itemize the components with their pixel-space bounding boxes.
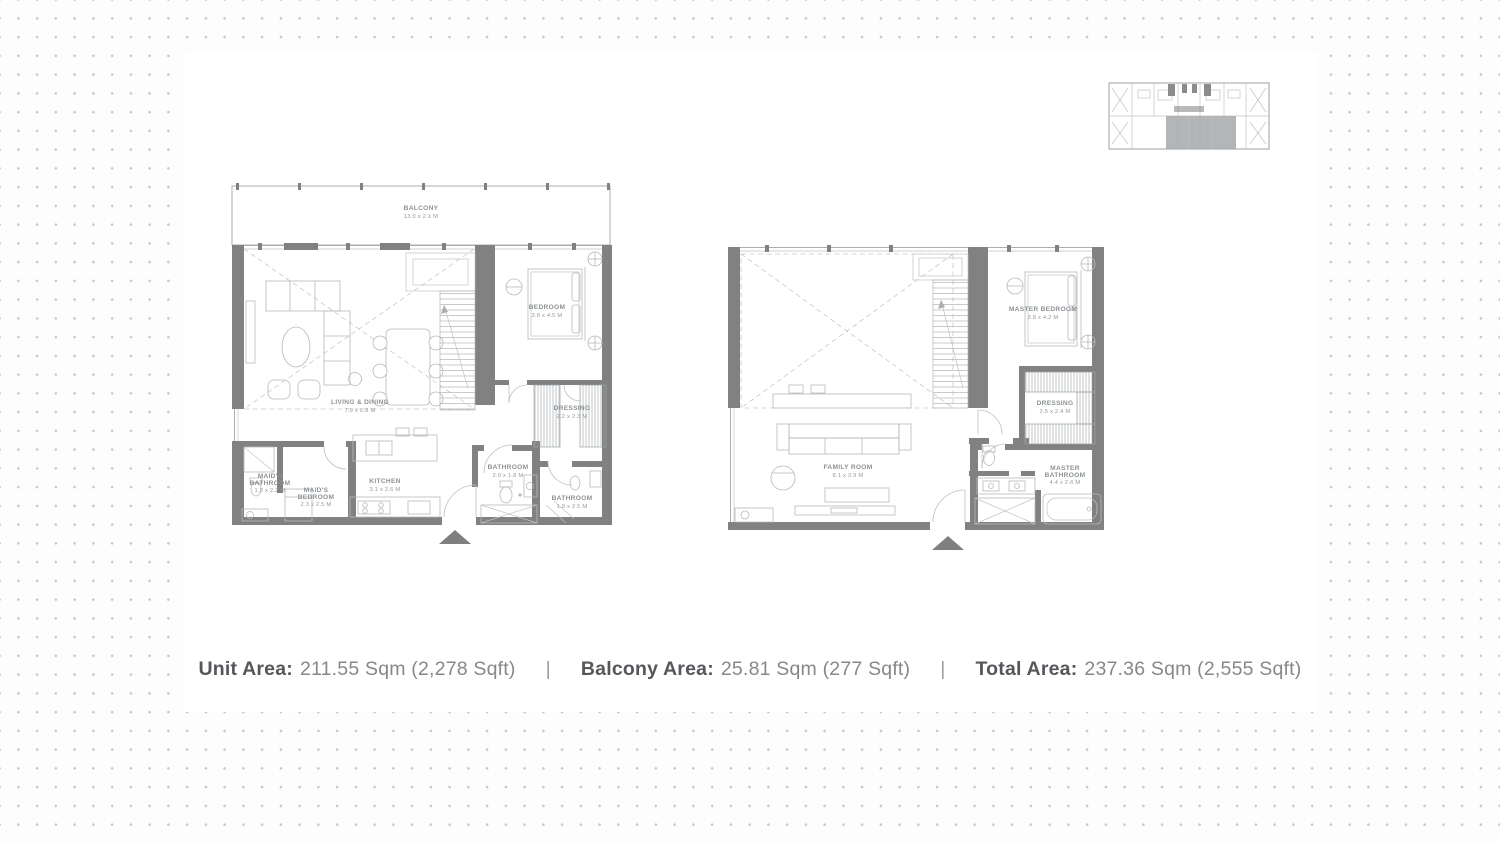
key-plan: [1108, 82, 1270, 150]
entrance-arrow-icon: [439, 530, 471, 544]
total-area-value: 237.36 Sqm (2,555 Sqft): [1084, 658, 1301, 680]
tv-console: [795, 506, 895, 515]
room-dims: 1.9 x 2.5 M: [557, 504, 588, 510]
room-label: MAID'S: [304, 487, 329, 494]
sink: [590, 471, 601, 487]
fridge: [408, 501, 430, 514]
toilet: [570, 476, 580, 490]
room-dressing: DRESSING 2.2 x 2.3 M: [534, 385, 606, 447]
room-label: KITCHEN: [369, 478, 400, 485]
room-label: LIVING & DINING: [331, 399, 389, 406]
room-label: BEDROOM: [529, 304, 566, 311]
armchairs: [268, 380, 320, 399]
sofa: [266, 281, 350, 385]
room-label: MAID'S: [258, 473, 283, 480]
table: [773, 394, 911, 408]
coffee-table: [825, 488, 889, 502]
wardrobe: [1025, 372, 1095, 392]
separator: |: [546, 658, 551, 681]
room-dims: 2.5 x 2.4 M: [1040, 409, 1071, 415]
room-kitchen: KITCHEN 3.1 x 2.6 M: [350, 428, 440, 517]
wardrobe: [1077, 392, 1095, 424]
separator: |: [940, 658, 945, 681]
room-family-room: FAMILY ROOM 8.1 x 3.9 M: [771, 424, 911, 515]
stairs: [406, 253, 475, 410]
lower-floor-plan: BALCONY 13.0 x 2.1 M: [228, 183, 618, 548]
room-label: DRESSING: [554, 405, 591, 412]
room-label: BATHROOM: [488, 464, 529, 471]
room-label: BEDROOM: [298, 494, 335, 501]
shower: [975, 498, 1035, 524]
drain: [518, 493, 521, 496]
room-dims: 3.1 x 2.6 M: [370, 487, 401, 493]
room-bathroom-2: BATHROOM 1.9 x 2.5 M: [546, 471, 601, 523]
balcony-area-value: 25.81 Sqm (277 Sqft): [721, 658, 910, 680]
unit-area-label: Unit Area:: [199, 658, 293, 680]
toilet: [984, 451, 995, 466]
wardrobe: [1025, 424, 1095, 444]
balcony-area-label: Balcony Area:: [581, 658, 714, 680]
total-area: Total Area:237.36 Sqm (2,555 Sqft): [976, 658, 1302, 681]
room-dims: 2.2 x 2.3 M: [557, 414, 588, 420]
room-master-bedroom: MASTER BEDROOM 3.8 x 4.2 M: [1007, 257, 1095, 349]
side-table: [349, 373, 362, 386]
room-dims: 2.0 x 1.8 M: [493, 473, 524, 479]
room-bathroom-1: BATHROOM 2.0 x 1.8 M: [488, 464, 537, 503]
unit-area-value: 211.55 Sqm (2,278 Sqft): [300, 658, 516, 680]
room-bedroom: BEDROOM 3.8 x 4.5 M: [506, 252, 602, 350]
upper-floor-plan: MASTER BEDROOM 3.8 x 4.2 M DRESSING 2.5 …: [725, 238, 1115, 568]
room-label: BATHROOM: [250, 480, 291, 487]
room-label: FAMILY ROOM: [823, 464, 872, 471]
room-balcony: BALCONY 13.0 x 2.1 M: [232, 183, 610, 245]
double-height-void: [741, 254, 953, 408]
room-label: BATHROOM: [1045, 472, 1086, 479]
window-wall: [232, 243, 612, 250]
room-living-dining: LIVING & DINING 7.9 x 6.9 M: [244, 249, 474, 414]
room-dims: 4.4 x 2.6 M: [1050, 480, 1081, 486]
room-dims: 13.0 x 2.1 M: [404, 214, 438, 220]
room-maids-bathroom: MAID'S BATHROOM 1.2 x 2.2 M: [242, 447, 291, 521]
console-table: [246, 301, 255, 363]
dining-table: [373, 329, 443, 406]
key-plan-highlighted-unit: [1166, 116, 1236, 149]
entrance-arrow-icon: [932, 536, 964, 550]
area-summary: Unit Area:211.55 Sqm (2,278 Sqft) | Balc…: [0, 653, 1500, 685]
room-dims: 3.8 x 4.2 M: [1028, 315, 1059, 321]
toilet: [500, 487, 512, 503]
door-swings: [933, 410, 1006, 522]
coffee-table: [282, 327, 310, 367]
room-dims: 7.9 x 6.9 M: [345, 408, 376, 414]
armchair: [771, 466, 795, 490]
room-label: BATHROOM: [552, 495, 593, 502]
room-dressing: DRESSING 2.5 x 2.4 M: [1025, 372, 1095, 444]
room-label: BALCONY: [404, 205, 439, 212]
room-dims: 3.8 x 4.5 M: [532, 313, 563, 319]
column-symbol: [588, 252, 602, 350]
room-label: MASTER BEDROOM: [1009, 306, 1078, 313]
vanity: [977, 478, 1035, 494]
sofa: [777, 424, 911, 454]
balcony-area: Balcony Area:25.81 Sqm (277 Sqft): [581, 658, 910, 681]
room-dims: 8.1 x 3.9 M: [833, 473, 864, 479]
room-maids-bedroom: MAID'S BEDROOM 2.3 x 2.5 M: [285, 487, 334, 521]
room-label: MASTER: [1050, 465, 1080, 472]
unit-area: Unit Area:211.55 Sqm (2,278 Sqft): [199, 658, 516, 681]
room-label: DRESSING: [1037, 400, 1074, 407]
window-wall: [728, 245, 1104, 252]
room-dims: 2.3 x 2.5 M: [301, 502, 332, 508]
room-dims: 1.2 x 2.2 M: [255, 488, 286, 494]
total-area-label: Total Area:: [976, 658, 1078, 680]
